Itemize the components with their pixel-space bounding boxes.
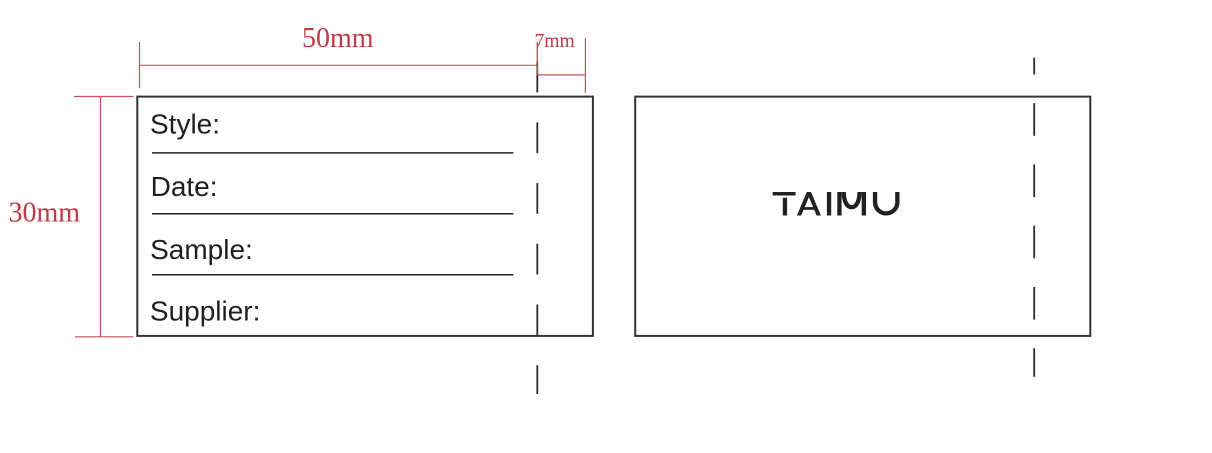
- svg-text:50mm: 50mm: [302, 23, 374, 54]
- svg-text:Supplier:: Supplier:: [150, 296, 261, 327]
- svg-text:30mm: 30mm: [9, 197, 81, 228]
- svg-text:Sample:: Sample:: [150, 234, 253, 265]
- svg-text:7mm: 7mm: [535, 31, 575, 52]
- svg-text:Date:: Date:: [151, 171, 218, 202]
- svg-text:Style:: Style:: [150, 109, 220, 140]
